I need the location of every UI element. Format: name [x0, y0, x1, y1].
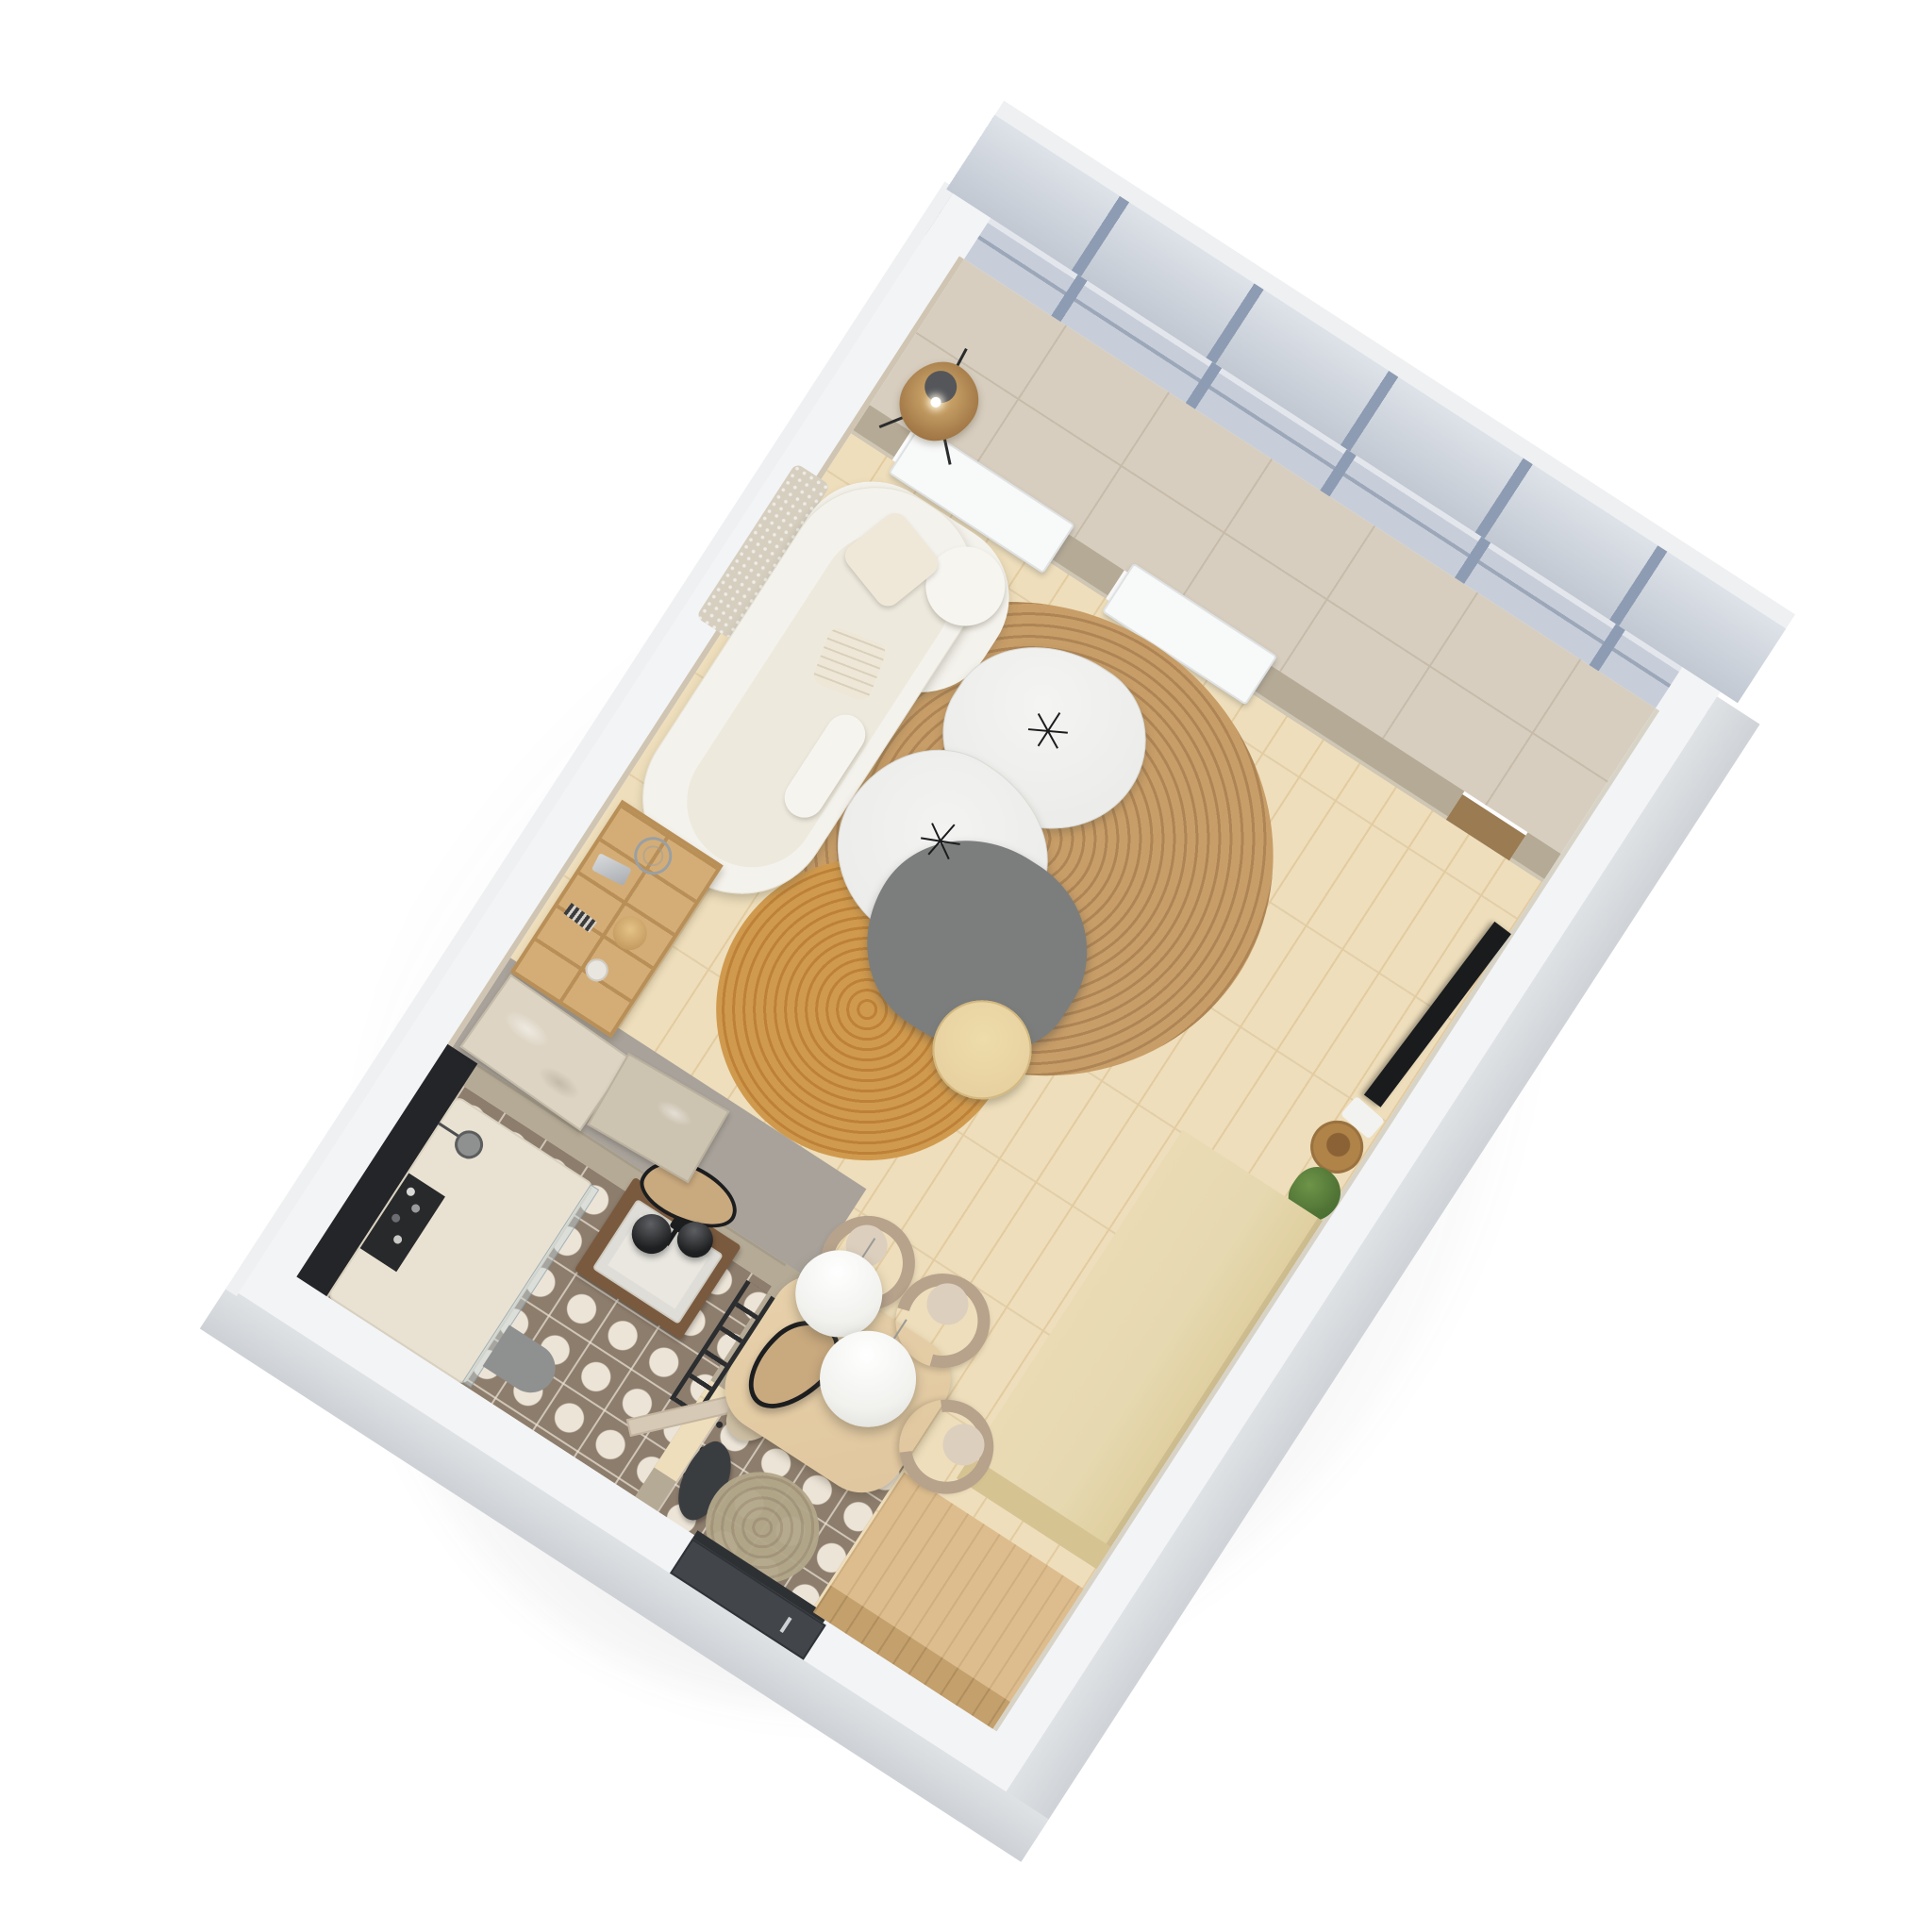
floorplan-render	[0, 0, 1932, 1932]
apartment	[239, 193, 1721, 1791]
